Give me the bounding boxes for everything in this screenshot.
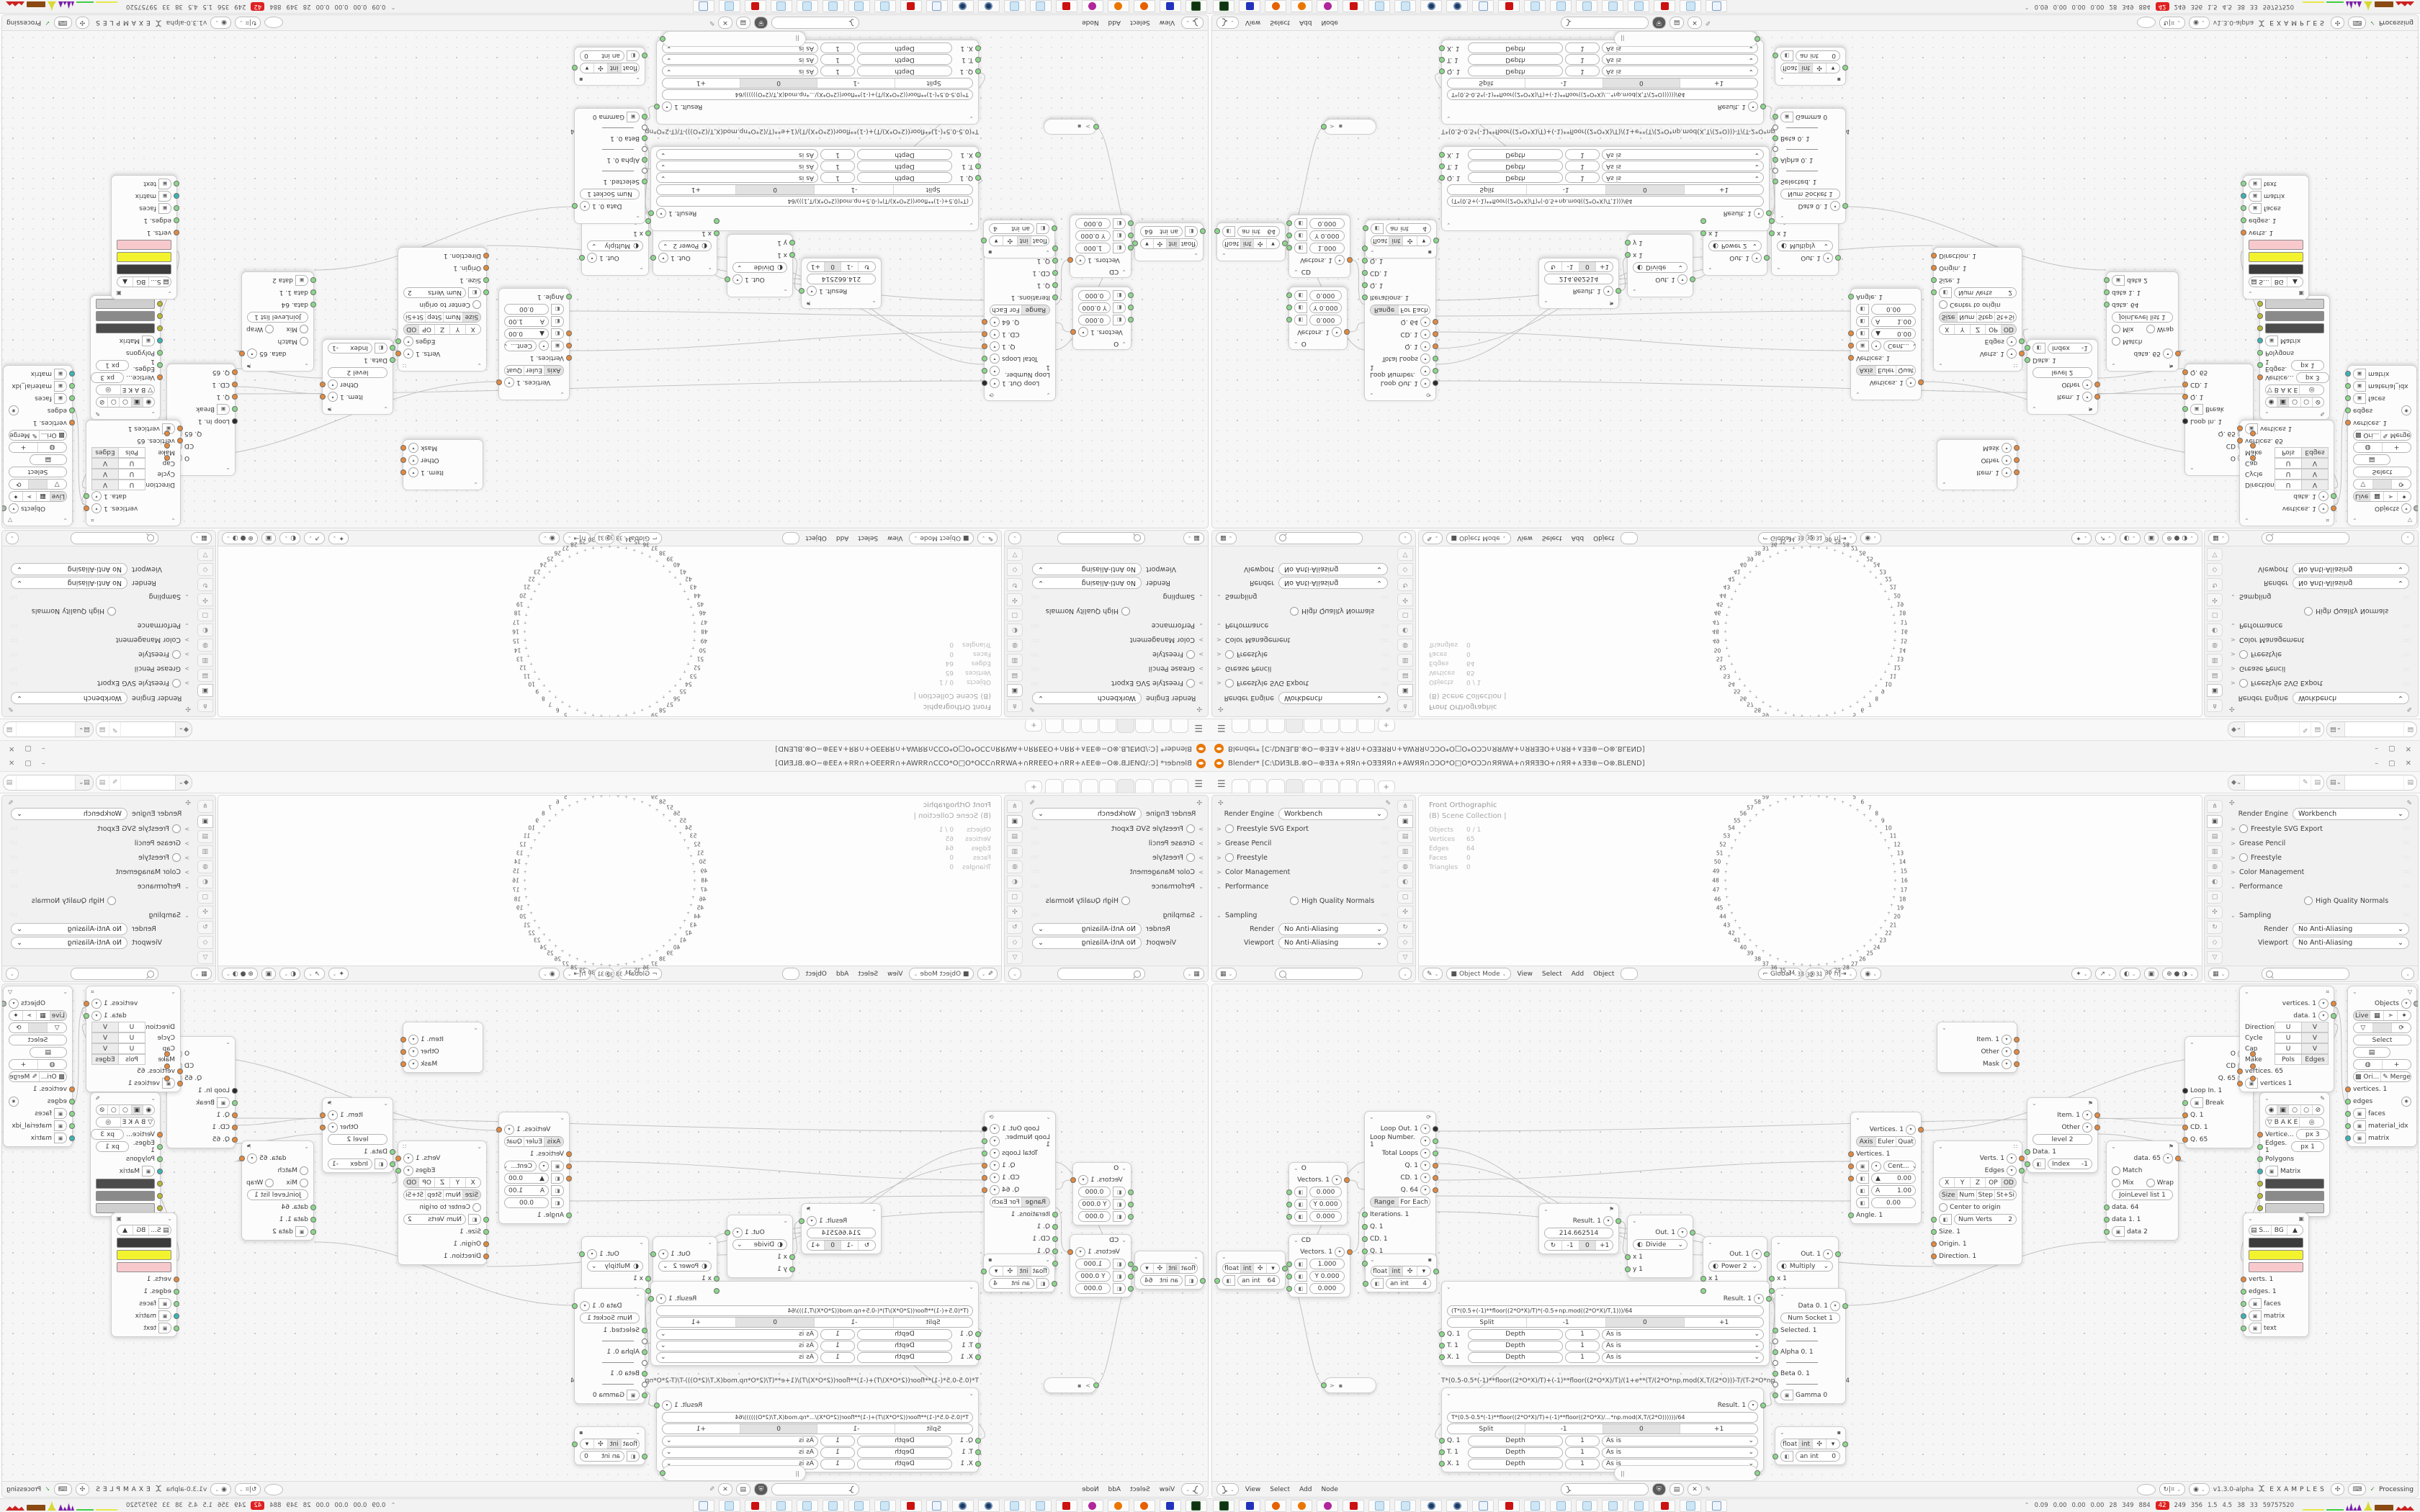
console-button[interactable]: ⌨ — [2348, 17, 2366, 29]
number-field[interactable]: 0.00 — [1871, 1197, 1916, 1208]
formula-input[interactable]: T*(0.5-0.5*(-1)**floor((2*O*X)/T)+(-1)**… — [662, 1412, 973, 1423]
collapsed-node[interactable]: || — [1614, 31, 1758, 47]
properties-tab-8[interactable]: ↻ — [1397, 921, 1413, 934]
seg-option[interactable]: ▾ — [1141, 239, 1153, 248]
seg-option[interactable]: ▣ — [131, 397, 143, 407]
properties-section[interactable]: >Freestyle SVG Export∷∷ — [1212, 822, 1394, 836]
socket-menu-button[interactable]: ▾ — [408, 444, 418, 454]
section-checkbox[interactable] — [1186, 853, 1195, 862]
wrap-dropdown[interactable]: As is⌄ — [1602, 1447, 1758, 1458]
seg-option[interactable]: ✣ — [1813, 63, 1827, 73]
slider-icon[interactable]: ◧ — [468, 1214, 481, 1225]
socket-gr[interactable] — [1362, 283, 1368, 289]
node-header-icon[interactable]: ⌗ — [2326, 517, 2329, 524]
menu-hamburger-icon[interactable]: ☰ — [1194, 722, 1203, 733]
taskbar-icon-console[interactable] — [1186, 1500, 1207, 1512]
socket-gr[interactable] — [2345, 1111, 2351, 1117]
unlink-button[interactable]: ✕ — [718, 17, 732, 29]
seg-option[interactable]: ◉ — [2266, 397, 2277, 407]
xray-toggle[interactable]: ◐⌄ — [279, 968, 300, 980]
socket-or[interactable] — [232, 1125, 238, 1130]
color-swatch[interactable] — [117, 240, 171, 251]
node-17[interactable]: ⌄⚑data. 65▾MatchMixWrapJoinLevel list 1d… — [241, 1140, 314, 1241]
overlays-toggle[interactable]: ↗⌄ — [2095, 532, 2115, 544]
segmented-buttons[interactable]: RangeFor Each — [990, 1197, 1050, 1207]
segmented-buttons[interactable]: floatint✣▾ — [1222, 238, 1280, 249]
socket-wh[interactable] — [642, 147, 647, 153]
node-10[interactable]: ⌄Result. 1▾T*(0.5-0.5*(-1)**floor((2*O*X… — [656, 40, 979, 125]
workspace-tab[interactable] — [1250, 779, 1267, 793]
collapse-chevron-icon[interactable]: ⌄ — [1632, 288, 1637, 294]
socket-menu-button[interactable]: ▾ — [990, 318, 1000, 328]
socket-gr[interactable] — [390, 358, 395, 364]
socket-gr[interactable] — [1439, 1331, 1445, 1337]
scene-selector[interactable]: ◆⌄✎▤ — [96, 721, 192, 737]
socket-menu-button[interactable]: ▾ — [990, 1136, 1000, 1146]
segmented-buttons[interactable]: floatint✣▾ — [1780, 1439, 1840, 1449]
link-toggle-icon[interactable]: ▣ — [2353, 393, 2366, 404]
socket-gr[interactable] — [174, 1326, 179, 1331]
slider-icon[interactable]: ◧ — [1294, 315, 1307, 325]
socket-gr[interactable] — [1128, 221, 1134, 227]
socket-gr[interactable] — [1128, 305, 1134, 311]
formula-input[interactable]: (T*(0.5+(-1)**floor((2*O*X)/T)*(-0.5+np.… — [656, 197, 973, 207]
socket-gr[interactable] — [1766, 1296, 1772, 1302]
node-16[interactable]: ⌄⚑Item. 1▾Other▾level 2Data. 1◧Index-1 — [2027, 1097, 2098, 1173]
socket-gr[interactable] — [174, 1301, 179, 1307]
section-checkbox[interactable] — [2239, 650, 2248, 659]
seg-option[interactable]: 0 — [1606, 185, 1685, 194]
segmented-buttons[interactable]: XYZOPOD — [1939, 1177, 2017, 1188]
tree-name-field[interactable] — [771, 17, 859, 29]
maximize-button[interactable]: ▢ — [2388, 760, 2395, 768]
node-9[interactable]: ⌄Result. 1▾(T*(0.5+(-1)**floor((2*O*X)/T… — [650, 1281, 979, 1366]
seg-option[interactable]: +1 — [1596, 262, 1613, 271]
size-field[interactable]: px 1 — [96, 1141, 129, 1152]
add-workspace-button[interactable]: + — [1025, 780, 1042, 793]
node-header-icon[interactable]: ▪ — [579, 1429, 583, 1436]
socket-bk[interactable] — [1433, 381, 1438, 387]
slider-icon[interactable]: ◧ — [1939, 287, 1952, 298]
taskbar-icon-cat[interactable] — [1082, 1, 1103, 13]
pin-icon[interactable]: ✎ — [709, 1486, 715, 1493]
link-toggle-icon[interactable]: ▣ — [54, 369, 67, 379]
collapse-chevron-icon[interactable]: ⌄ — [871, 300, 877, 306]
properties-tab-6[interactable]: ▢ — [1397, 891, 1413, 904]
socket-or[interactable] — [1433, 320, 1438, 325]
taskbar-icon-notepad[interactable] — [719, 1500, 740, 1512]
table-option[interactable]: Edges — [2301, 1054, 2329, 1065]
search-input[interactable] — [1057, 532, 1145, 544]
socket-gr[interactable] — [1842, 66, 1848, 71]
socket-gr[interactable] — [1052, 271, 1058, 276]
properties-tab-0[interactable]: ⋔ — [2207, 800, 2223, 813]
segmented-buttons[interactable]: Live▦➣✦ — [9, 1010, 67, 1021]
socket-or[interactable] — [174, 230, 179, 236]
taskbar-icon-redgear[interactable] — [745, 1500, 766, 1512]
socket-wh[interactable] — [1773, 1382, 1778, 1387]
link-toggle-icon[interactable]: ▣ — [217, 1097, 230, 1108]
socket-gr[interactable] — [1773, 1328, 1778, 1333]
node-button-select[interactable]: Select — [2353, 467, 2411, 477]
seg-option[interactable]: ▽ B A K E — [120, 385, 154, 395]
function-dropdown[interactable]: ◐Multiply⌄ — [587, 1261, 643, 1272]
socket-gr[interactable] — [1773, 114, 1778, 120]
wrap-dropdown[interactable]: As is⌄ — [1602, 66, 1758, 77]
taskbar-icon-notepad[interactable] — [1030, 1, 1052, 13]
node-2[interactable]: ⌄⟳Loop Out. 1▾Loop Number. 1▾Total Loops… — [984, 240, 1056, 401]
properties-section[interactable]: ⌄Performance∷∷ — [1212, 879, 1394, 894]
depth-button[interactable]: Depth — [857, 1341, 952, 1351]
socket-gr[interactable] — [1362, 258, 1368, 264]
socket-or[interactable] — [400, 470, 406, 476]
socket-menu-button[interactable]: ▾ — [2163, 349, 2173, 359]
eye-icon[interactable]: ◉ — [9, 1097, 19, 1107]
slider-icon[interactable]: ◧ — [1780, 1451, 1793, 1462]
fake-user-button[interactable]: ⛨ — [754, 17, 768, 29]
segmented-buttons[interactable]: RangeFor Each — [1370, 305, 1430, 315]
properties-tab-9[interactable]: ◇ — [1007, 936, 1023, 949]
render-engine-dropdown[interactable]: Workbench⌄ — [2293, 693, 2409, 705]
seg-option[interactable]: ▾ — [1417, 1266, 1430, 1276]
socket-gr[interactable] — [1439, 152, 1445, 158]
workspace-tab[interactable] — [1117, 779, 1134, 793]
socket-gr[interactable] — [2241, 181, 2246, 187]
collapse-chevron-icon[interactable]: ⌄ — [2190, 467, 2195, 473]
socket-bk[interactable] — [982, 1126, 987, 1132]
seg-option[interactable]: int — [1166, 239, 1179, 248]
value-field[interactable]: 214.662514 — [1544, 274, 1613, 284]
socket-or[interactable] — [320, 1125, 326, 1130]
render-engine-dropdown[interactable]: Workbench⌄ — [11, 693, 127, 705]
socket-gr[interactable] — [654, 1403, 660, 1408]
node-22[interactable]: ⌄▣▤ S...BG▲verts. 1edges. 1▣faces▣matrix… — [2243, 175, 2309, 300]
render-engine-dropdown[interactable]: Workbench⌄ — [1032, 693, 1142, 705]
menu-view[interactable]: View — [1157, 1486, 1178, 1493]
node-header-icon[interactable]: ⚑ — [246, 1143, 251, 1150]
collapse-chevron-icon[interactable]: ⌄ — [1446, 222, 1451, 228]
socket-gr[interactable] — [483, 1229, 489, 1235]
socket-gr[interactable] — [1769, 219, 1775, 225]
seg-option[interactable]: St+Si — [1995, 312, 2016, 322]
antialiasing-dropdown[interactable]: No Anti-Aliasing⌄ — [1032, 577, 1142, 589]
taskbar-icon-notepad[interactable] — [1628, 1, 1649, 13]
viewlayer-name-field[interactable] — [17, 722, 75, 737]
seg-option[interactable]: Step — [1977, 1190, 1996, 1200]
socket-bk[interactable] — [2182, 419, 2188, 425]
shading-mode-group[interactable]: ⊕ ● ◑⌄ — [2162, 968, 2198, 980]
socket-menu-button[interactable]: ▾ — [328, 392, 338, 402]
node-3[interactable]: ⌄floatint✣▾◧an int64 — [1216, 222, 1286, 261]
depth-button[interactable]: Depth — [857, 173, 952, 184]
menu-select[interactable]: Select — [1127, 19, 1153, 27]
icon-button-circle[interactable] — [2137, 17, 2156, 29]
function-dropdown[interactable]: ◐Power 2⌄ — [658, 1261, 712, 1272]
socket-menu-button[interactable]: ▾ — [1420, 1161, 1430, 1171]
seg-option[interactable]: ◎ — [2300, 1117, 2323, 1127]
properties-section[interactable]: ⌄Sampling∷∷ — [2226, 590, 2415, 604]
number-field[interactable]: Y 0.000 — [1075, 230, 1111, 241]
socket-gr[interactable] — [725, 1230, 730, 1236]
number-field[interactable]: Index-1 — [328, 1158, 372, 1169]
depth-button[interactable]: Depth — [857, 1459, 952, 1470]
antialiasing-dropdown[interactable]: No Anti-Aliasing⌄ — [11, 923, 127, 935]
node-3[interactable]: ⌄floatint✣▾◧an int64 — [1134, 1251, 1204, 1290]
socket-gr[interactable] — [1760, 1403, 1766, 1408]
function-dropdown[interactable]: ◐Divide⌄ — [732, 1239, 787, 1250]
table-option[interactable]: U — [118, 1032, 145, 1043]
socket-gr[interactable] — [789, 1254, 795, 1260]
editor-type-button[interactable]: ✎⌄ — [1422, 532, 1443, 544]
node-header-icon[interactable]: ▪ — [1428, 249, 1432, 256]
taskbar-icon-notepad[interactable] — [1394, 1500, 1416, 1512]
segmented-buttons[interactable]: floatint✣▾ — [1140, 238, 1198, 249]
seg-option[interactable]: Z — [1971, 1178, 1986, 1187]
number-field[interactable]: Index-1 — [2048, 1158, 2092, 1169]
taskbar-icon-notepad[interactable] — [719, 1, 740, 13]
collapse-chevron-icon[interactable]: ⌄ — [707, 1239, 712, 1246]
function-dropdown[interactable]: ◐Power 2⌄ — [658, 240, 712, 251]
socket-menu-button[interactable]: ▾ — [9, 999, 19, 1009]
dimension-field[interactable]: 1 — [820, 1329, 855, 1340]
socket-gr[interactable] — [2104, 302, 2110, 308]
socket-gr[interactable] — [1286, 1189, 1292, 1195]
table-option[interactable]: Edges — [91, 447, 119, 458]
link-toggle-icon[interactable]: ▣ — [1780, 1390, 1793, 1400]
dimension-field[interactable]: 1 — [1565, 1329, 1600, 1340]
collapse-chevron-icon[interactable]: ⌄ — [560, 1115, 565, 1121]
render-engine-dropdown[interactable]: Workbench⌄ — [1032, 808, 1142, 820]
editor-type-button[interactable]: ▦⌄ — [191, 968, 212, 980]
properties-tab-8[interactable]: ↻ — [1007, 578, 1023, 591]
slider-icon[interactable]: ◧ — [1113, 1187, 1126, 1197]
seg-option[interactable]: ✦ — [9, 1011, 22, 1020]
socket-gr[interactable] — [2182, 407, 2188, 413]
socket-or[interactable] — [320, 1112, 326, 1118]
collapse-chevron-icon[interactable]: ⌄ — [969, 1390, 974, 1397]
socket-menu-button[interactable]: ▾ — [990, 342, 1000, 352]
taskbar-icon-notepad[interactable] — [797, 1500, 818, 1512]
workspace-tab[interactable] — [1340, 719, 1357, 733]
seg-option[interactable]: Live — [50, 1011, 66, 1020]
depth-button[interactable]: Depth — [1468, 55, 1563, 66]
properties-tab-strip[interactable]: ⋔▣▤▥◍◐▢✣↻◇▽ — [1396, 548, 1415, 712]
tree-name-field[interactable] — [771, 1483, 859, 1495]
socket-or[interactable] — [1931, 266, 1937, 271]
menu-view[interactable]: View — [1242, 19, 1263, 27]
wrap-dropdown[interactable]: As is⌄ — [1602, 150, 1764, 161]
node-20[interactable]: ⌄▽Objects▾Live▦➣✦▽⟳Select▤◍+▩ Ori...✎ Me… — [2347, 365, 2417, 526]
properties-tab-5[interactable]: ◐ — [2207, 876, 2223, 888]
socket-or[interactable] — [2331, 1001, 2336, 1007]
node-0[interactable]: ⌄OVectors. 1▾◧0.000◧Y 0.000◧0.000 — [1289, 1162, 1348, 1225]
socket-bk[interactable] — [232, 1088, 238, 1094]
properties-section[interactable]: ⌄Sampling∷∷ — [1026, 590, 1208, 604]
taskbar-icon-notepad[interactable] — [823, 1500, 844, 1512]
dimension-field[interactable]: 1 — [820, 1436, 855, 1446]
depth-button[interactable]: Depth — [1468, 150, 1563, 161]
seg-option[interactable]: Size — [462, 1190, 480, 1200]
seg-option[interactable]: ▾ — [990, 236, 1003, 246]
number-field[interactable]: Y 0.000 — [1078, 302, 1111, 313]
slider-icon[interactable]: ◧ — [551, 1173, 564, 1184]
editor-type-button[interactable]: ▦⌄ — [1183, 968, 1204, 980]
socket-or[interactable] — [2014, 1061, 2020, 1067]
socket-gr[interactable] — [642, 136, 647, 142]
socket-wh[interactable] — [1773, 168, 1778, 174]
socket-menu-button[interactable]: ▾ — [1748, 102, 1758, 112]
socket-menu-button[interactable]: ▾ — [990, 1148, 1000, 1158]
slider-icon[interactable]: ◧ — [2033, 1158, 2045, 1169]
socket-gr[interactable] — [642, 114, 647, 120]
socket-menu-button[interactable]: ▾ — [1335, 1247, 1345, 1257]
node-header-icon[interactable]: ✎ — [95, 410, 100, 417]
socket-gr[interactable] — [2025, 1149, 2030, 1155]
properties-tab-9[interactable]: ◇ — [1397, 936, 1413, 949]
overlay-dropdown[interactable]: ◉⌄ — [2189, 1483, 2210, 1495]
socket-gr[interactable] — [645, 1276, 651, 1282]
xray-toggle[interactable]: ◐⌄ — [2120, 532, 2141, 544]
properties-tab-10[interactable]: ▽ — [1397, 951, 1413, 964]
socket-or[interactable] — [982, 344, 987, 350]
properties-section[interactable]: >Color Management∷∷ — [5, 865, 194, 879]
number-field[interactable]: 0.00 — [504, 1197, 549, 1208]
properties-tab-strip[interactable]: ⋔▣▤▥◍◐▢✣↻◇▽ — [1005, 800, 1024, 964]
node-header-icon[interactable]: ▣ — [2298, 1215, 2304, 1222]
menu-select[interactable]: Select — [1539, 535, 1565, 542]
options-dropdown[interactable]: ⌄ — [1008, 532, 1021, 544]
socket-or[interactable] — [2094, 382, 2100, 388]
properties-tab-10[interactable]: ▽ — [2207, 951, 2223, 964]
icon-button-circle[interactable] — [264, 1484, 283, 1495]
seg-option[interactable]: Split — [893, 185, 972, 194]
properties-tab-2[interactable]: ▤ — [1397, 830, 1413, 843]
socket-menu-button[interactable]: ▾ — [1420, 318, 1430, 328]
node-15[interactable]: ⌄Item. 1▾Other▾Mask▾ — [1937, 1022, 2017, 1073]
taskbar-icon-floppy[interactable] — [1239, 1, 1260, 13]
socket-or[interactable] — [2250, 1051, 2256, 1057]
socket-gr[interactable] — [310, 278, 316, 284]
dimension-field[interactable]: 1 — [820, 1341, 855, 1351]
table-option[interactable]: V — [91, 480, 119, 490]
link-toggle-icon[interactable]: ▣ — [2249, 1298, 2262, 1309]
seg-option[interactable]: OD — [2002, 325, 2016, 334]
properties-section[interactable]: >Freestyle SVG Export∷∷ — [1212, 676, 1394, 690]
socket-or[interactable] — [496, 1127, 502, 1133]
node-21[interactable]: ⌄✎◉▣○○⊘▽ B A K E◎Vertice...px 3Edges. 1p… — [90, 295, 161, 420]
collapse-chevron-icon[interactable]: ⌄ — [151, 410, 156, 417]
socket-or[interactable] — [982, 1187, 987, 1193]
link-toggle-icon[interactable]: ▣ — [2353, 1108, 2366, 1119]
number-field[interactable]: Y 0.000 — [1075, 1271, 1111, 1282]
scene-name-field[interactable] — [121, 775, 174, 790]
collapse-chevron-icon[interactable]: ⌄ — [1121, 1165, 1126, 1171]
taskbar-icon-floppy[interactable] — [1160, 1, 1181, 13]
properties-tab-8[interactable]: ↻ — [2207, 921, 2223, 934]
collapse-chevron-icon[interactable]: ⌄ — [1446, 1284, 1451, 1290]
section-checkbox[interactable] — [1225, 824, 1234, 833]
node-17[interactable]: ⌄⚑data. 65▾MatchMixWrapJoinLevel list 1d… — [2106, 1140, 2179, 1241]
link-toggle-icon[interactable]: ▣ — [627, 1390, 640, 1400]
properties-section[interactable]: ⌄Sampling∷∷ — [2226, 908, 2415, 922]
seg-option[interactable]: ◉ — [2266, 1105, 2277, 1115]
depth-button[interactable]: Depth — [1468, 173, 1563, 184]
workspace-tab[interactable] — [1045, 779, 1062, 793]
link-toggle-icon[interactable]: ▣ — [54, 1133, 67, 1143]
checkbox[interactable] — [2112, 1166, 2120, 1175]
properties-tab-1[interactable]: ▣ — [2207, 684, 2223, 697]
depth-button[interactable]: Depth — [1468, 1341, 1563, 1351]
seg-option[interactable]: +1 — [1685, 185, 1763, 194]
table-option[interactable]: Edges — [2301, 447, 2329, 458]
properties-section[interactable]: >Freestyle SVG Export∷∷ — [2226, 822, 2415, 836]
slider-icon[interactable]: ◧ — [1185, 226, 1198, 237]
workspace-tab[interactable] — [1358, 779, 1375, 793]
function-dropdown[interactable]: ◐Power 2⌄ — [1708, 240, 1762, 251]
shading-mode-group[interactable]: ⊕ ● ◑⌄ — [222, 968, 258, 980]
add-workspace-button[interactable]: + — [1378, 719, 1395, 732]
search-input[interactable] — [1275, 968, 1363, 980]
seg-option[interactable]: ◎ — [97, 1117, 120, 1127]
seg-option[interactable]: ✣ — [1254, 1264, 1267, 1273]
options-dropdown[interactable]: ⌄ — [1399, 968, 1412, 980]
socket-menu-button[interactable]: ▾ — [1823, 253, 1833, 264]
slider-icon[interactable]: ◧ — [627, 50, 640, 61]
socket-menu-button[interactable]: ▾ — [403, 349, 413, 359]
number-field[interactable]: ▲0.00 — [504, 328, 549, 339]
seg-option[interactable]: X — [465, 1178, 480, 1187]
depth-button[interactable]: Depth — [857, 150, 952, 161]
socket-menu-button[interactable]: ▾ — [1754, 209, 1764, 219]
hq-normals-checkbox[interactable] — [1290, 607, 1299, 616]
socket-or[interactable] — [566, 1164, 572, 1169]
seg-option[interactable]: ▾ — [581, 1439, 593, 1449]
seg-option[interactable]: + — [2383, 1060, 2411, 1069]
menu-select[interactable]: Select — [855, 535, 881, 542]
socket-menu-button[interactable]: ▾ — [2082, 1110, 2092, 1120]
slider-icon[interactable]: ◧ — [1856, 328, 1869, 339]
socket-gr[interactable] — [69, 1123, 75, 1129]
segmented-buttons[interactable]: XYZOPOD — [403, 324, 481, 335]
seg-option[interactable]: ✦ — [2398, 492, 2411, 501]
socket-menu-button[interactable]: ▾ — [580, 1301, 590, 1311]
collapse-chevron-icon[interactable]: ⌄ — [2244, 517, 2249, 523]
link-toggle-icon[interactable]: ▣ — [1780, 112, 1793, 122]
properties-section[interactable]: >Freestyle∷∷ — [1026, 647, 1208, 662]
socket-or[interactable] — [2182, 395, 2188, 400]
taskbar-icon-notepad[interactable] — [1550, 1500, 1572, 1512]
properties-section[interactable]: >Freestyle SVG Export∷∷ — [2226, 676, 2415, 690]
node-13[interactable]: ⌄Vertices. 1▾AxisEulerQuatVertices. 1▣▾C… — [1850, 288, 1922, 400]
checkbox[interactable] — [472, 1203, 481, 1212]
scene-name-field[interactable] — [121, 722, 174, 737]
editor-type-button[interactable]: ⌄ — [1181, 1483, 1204, 1495]
slider-icon[interactable]: ◧ — [2033, 343, 2045, 354]
socket-menu-button[interactable]: ▾ — [1420, 1124, 1430, 1134]
workspace-tab[interactable] — [1304, 779, 1321, 793]
eye-icon[interactable]: ◉ — [9, 406, 19, 416]
number-field[interactable]: 0.000 — [1309, 290, 1342, 301]
copy-icon[interactable]: ▤ — [2403, 722, 2416, 737]
socket-gr[interactable] — [1773, 1371, 1778, 1377]
socket-ol[interactable] — [157, 326, 163, 332]
workspace-tab[interactable] — [1171, 719, 1188, 733]
hq-normals-checkbox[interactable] — [1121, 607, 1130, 616]
socket-gr[interactable] — [1625, 1266, 1631, 1272]
socket-gr[interactable] — [1700, 231, 1706, 237]
seg-option[interactable]: Y — [1955, 1178, 1970, 1187]
size-field[interactable]: px 3 — [2296, 372, 2329, 383]
